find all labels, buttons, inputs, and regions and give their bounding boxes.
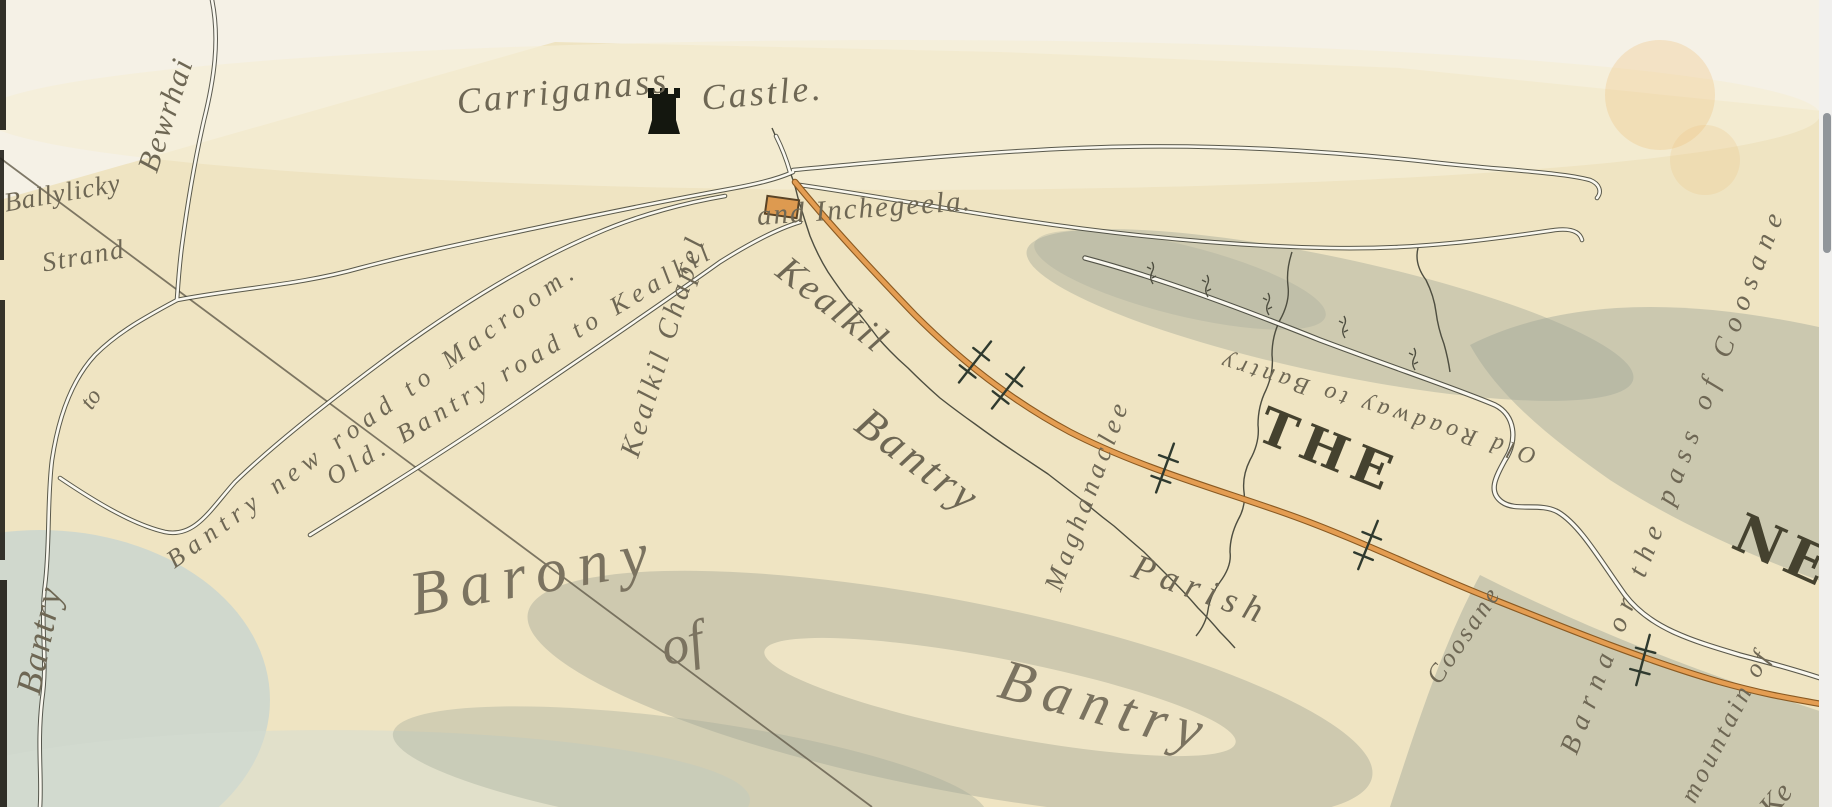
map-viewer: Carriganass Castle. Bewrhai Ballylicky S… bbox=[0, 0, 1832, 807]
scrollbar-thumb[interactable] bbox=[1823, 113, 1831, 253]
map-artwork bbox=[0, 0, 1832, 807]
scrollbar-track[interactable] bbox=[1819, 0, 1832, 807]
